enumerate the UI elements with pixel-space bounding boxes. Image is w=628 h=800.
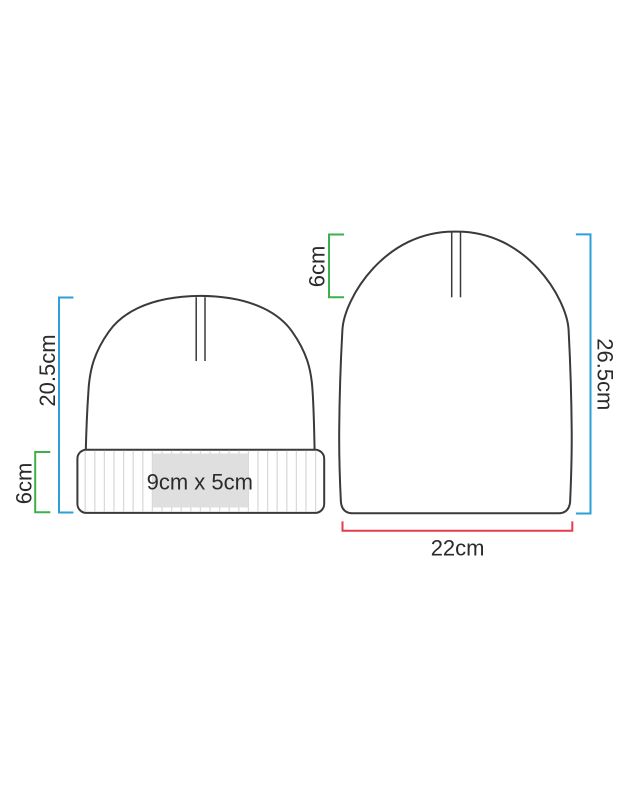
- svg-text:6cm: 6cm: [305, 246, 330, 288]
- svg-text:22cm: 22cm: [431, 536, 485, 561]
- svg-text:20.5cm: 20.5cm: [35, 334, 60, 406]
- svg-text:26.5cm: 26.5cm: [592, 338, 617, 410]
- svg-text:9cm x 5cm: 9cm x 5cm: [147, 469, 253, 494]
- svg-text:6cm: 6cm: [12, 463, 37, 505]
